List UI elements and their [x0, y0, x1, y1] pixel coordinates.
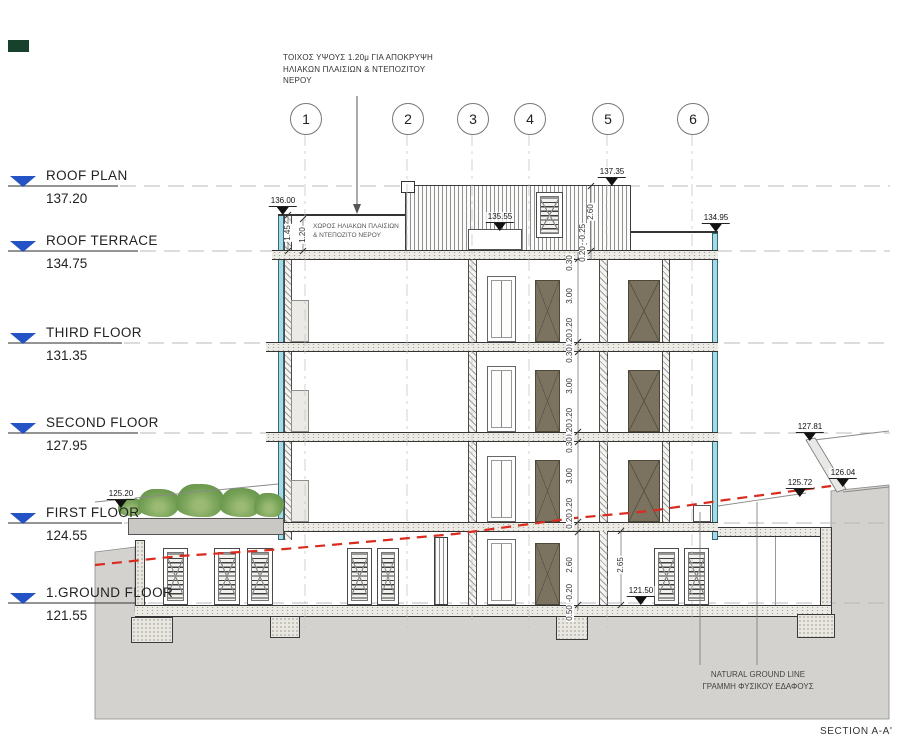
corner-mark [8, 40, 29, 52]
section-title: SECTION A-A' [820, 726, 892, 737]
dim-slab: 0.20 [579, 245, 587, 263]
dim-bulkhead-height: 2.60 [587, 203, 595, 221]
spot-planter-top: 125.20 [107, 489, 135, 508]
grid-bubble-5: 5 [592, 103, 624, 135]
level-triangle-icon [10, 176, 36, 187]
spot-terrain-mid: 126.04 [829, 468, 857, 487]
annotation-lines-layer [0, 0, 900, 746]
grid-bubble-2: 2 [392, 103, 424, 135]
grid-bubble-1: 1 [290, 103, 322, 135]
elevation-triangle-icon [804, 433, 816, 441]
level-triangle-icon [10, 423, 36, 434]
dim-parapet-total: 1.45 [284, 224, 292, 242]
spot-terrace-mid: 135.55 [486, 212, 514, 231]
grid-bubble-6: 6 [677, 103, 709, 135]
spot-grade: 121.50 [627, 586, 655, 605]
dim-ground-clear: 2.60 [566, 556, 574, 574]
grid-bubble-4: 4 [514, 103, 546, 135]
dim-parapet-wall: 1.20 [299, 226, 307, 244]
dim-footing: 0.50 [566, 604, 574, 622]
dim-slab: 0.20 [566, 512, 574, 530]
level-triangle-icon [10, 241, 36, 252]
level-triangle-icon [10, 333, 36, 344]
grid-lines [305, 134, 692, 628]
wall-height-note: ΤΟΙΧΟΣ ΥΨΟΥΣ 1.20μ ΓΙΑ ΑΠΟΚΡΥΨΗ ΗΛΙΑΚΩΝ … [283, 52, 455, 87]
dim-floor-clear: 3.00 [566, 287, 574, 305]
dim-slab: 0.30 [566, 436, 574, 454]
elevation-triangle-icon [277, 207, 289, 215]
wall-note-leader [353, 96, 361, 214]
dim-ground-inner: 2.65 [617, 556, 625, 574]
dimension-chains [288, 186, 621, 610]
level-triangle-icon [10, 513, 36, 524]
spot-terrain-high: 127.81 [796, 422, 824, 441]
ground-note-leaders [700, 502, 757, 665]
dim-floor-drop: -0.20 [566, 583, 574, 603]
elevation-triangle-icon [794, 489, 806, 497]
elevation-triangle-icon [837, 479, 849, 487]
terrain-lines [95, 431, 889, 506]
level-triangle-icon [10, 593, 36, 604]
elevation-triangle-icon [115, 500, 127, 508]
architectural-section-sheet: 1 2 3 4 5 6 ROOF PLAN 137.20 ROOF TERRAC… [0, 0, 900, 746]
elevation-triangle-icon [710, 224, 722, 232]
elevation-triangle-icon [606, 178, 618, 186]
spot-parapet-left: 136.00 [269, 196, 297, 215]
spot-bulkhead-top: 137.35 [598, 167, 626, 186]
dim-bulkhead-parapet: -0.25 [579, 223, 587, 243]
grid-bubble-3: 3 [457, 103, 489, 135]
spot-terrain-low: 125.72 [786, 478, 814, 497]
elevation-triangle-icon [635, 597, 647, 605]
dim-slab: 0.30 [566, 254, 574, 272]
dim-slab: 0.30 [566, 346, 574, 364]
natural-ground-line [95, 486, 831, 565]
elevation-triangle-icon [494, 223, 506, 231]
spot-parapet-right: 134.95 [702, 213, 730, 232]
natural-ground-note: NATURAL GROUND LINE ΓΡΑΜΜΗ ΦΥΣΙΚΟΥ ΕΔΑΦΟ… [693, 669, 823, 693]
solar-panel-area-note: ΧΩΡΟΣ ΗΛΙΑΚΩΝ ΠΛΑΙΣΙΩΝ & ΝΤΕΠΟΖΙΤΟ ΝΕΡΟΥ [313, 222, 401, 240]
dim-floor-clear: 3.00 [566, 377, 574, 395]
dim-floor-clear: 3.00 [566, 467, 574, 485]
